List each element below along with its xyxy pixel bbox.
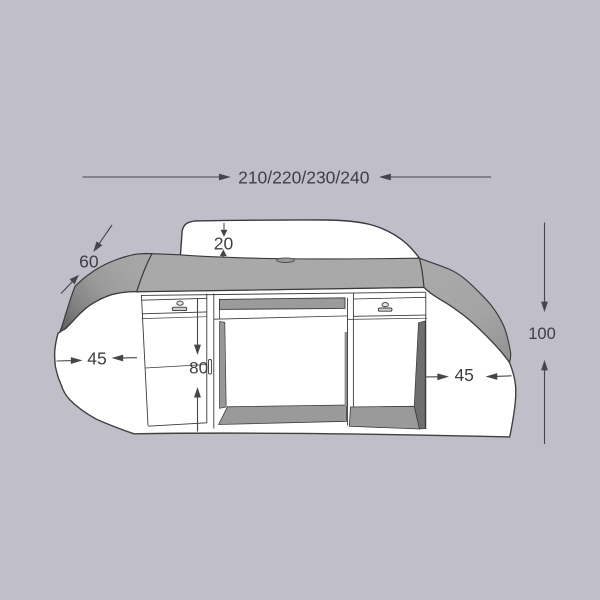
svg-text:20: 20 xyxy=(214,234,234,254)
svg-text:80: 80 xyxy=(189,359,208,378)
svg-text:45: 45 xyxy=(454,365,473,385)
svg-text:45: 45 xyxy=(87,348,106,368)
svg-text:100: 100 xyxy=(528,325,556,343)
svg-text:210/220/230/240: 210/220/230/240 xyxy=(238,167,370,187)
svg-text:60: 60 xyxy=(79,251,99,271)
